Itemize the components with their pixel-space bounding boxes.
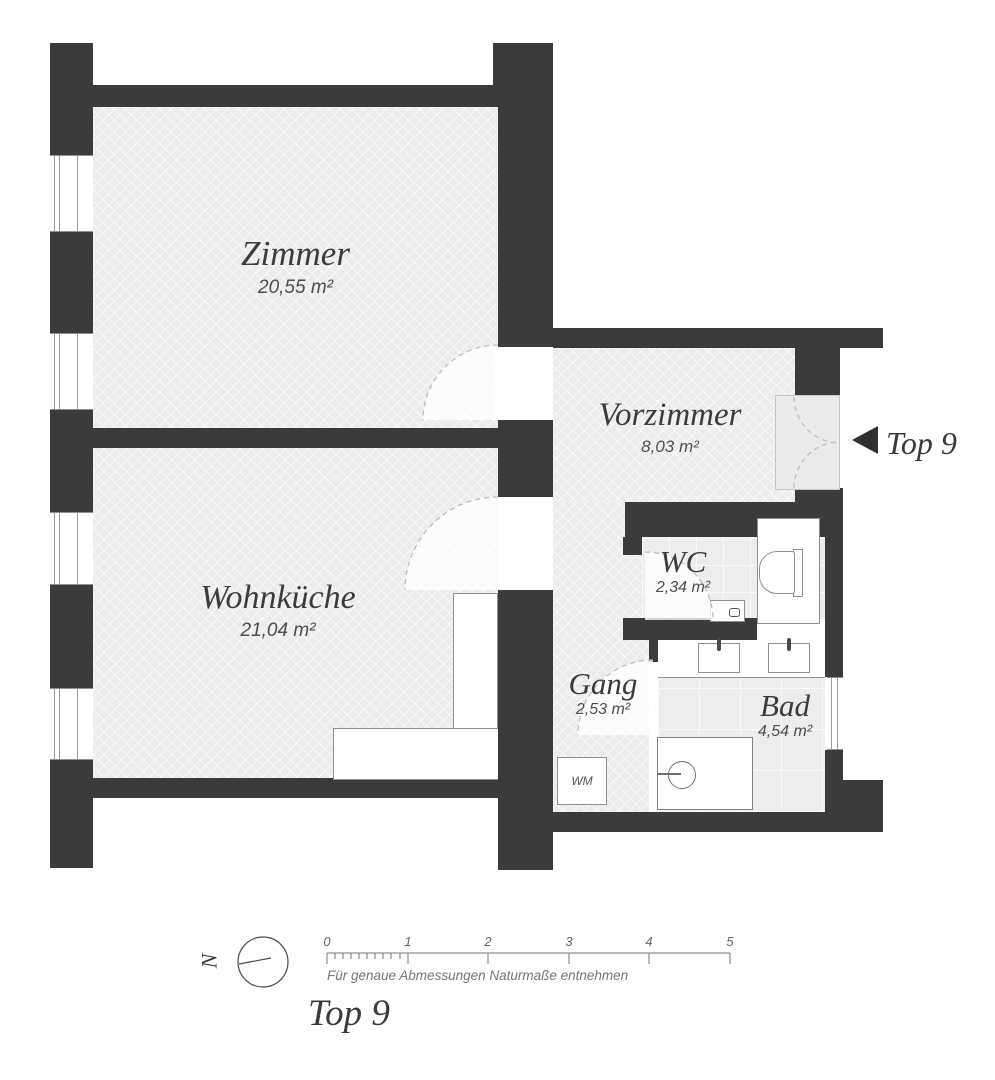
wall (623, 537, 642, 555)
wall (649, 640, 658, 662)
washing-machine: WM (557, 757, 607, 805)
wall (50, 85, 553, 107)
wall (843, 780, 883, 832)
wall (553, 812, 883, 832)
wall (50, 760, 93, 868)
wall (498, 107, 553, 347)
wall (50, 43, 93, 87)
bad-window (827, 677, 843, 750)
washing-machine-label: WM (558, 758, 606, 804)
faucet-icon (717, 638, 721, 651)
wall (795, 348, 840, 397)
toilet-bowl (759, 551, 795, 594)
wall (50, 585, 93, 688)
zimmer-floor (93, 107, 498, 428)
bathroom-sink (768, 643, 810, 673)
compass-circle (238, 937, 288, 987)
wohnkueche-door-opening (498, 497, 553, 590)
scale-tick-4: 4 (645, 934, 652, 949)
wall (93, 428, 498, 448)
scale-tick-2: 2 (483, 934, 492, 949)
zimmer-door-opening (494, 347, 553, 420)
window (50, 333, 93, 410)
wall (50, 232, 93, 333)
scale-tick-3: 3 (565, 934, 573, 949)
wall (93, 778, 498, 798)
compass-needle (239, 958, 271, 964)
entrance-label: Top 9 (886, 425, 957, 462)
window (50, 688, 93, 760)
faucet-icon (787, 638, 791, 651)
wall (825, 750, 843, 812)
wall (825, 505, 843, 677)
entrance-door-recess (775, 395, 840, 490)
kitchen-counter (333, 728, 498, 780)
wall (553, 328, 883, 348)
scale-tick-1: 1 (404, 934, 411, 949)
window (50, 512, 93, 585)
entrance-arrow-icon (852, 426, 878, 454)
wall (498, 590, 553, 870)
wc-sink (710, 600, 745, 622)
wall (50, 107, 93, 155)
scale-tick-0: 0 (323, 934, 331, 949)
wall (50, 410, 93, 512)
drain-icon (668, 761, 696, 789)
bathroom-sink (698, 643, 740, 673)
shower-arm (657, 773, 681, 775)
plan-title: Top 9 (308, 992, 390, 1035)
faucet-icon (729, 608, 740, 617)
scale-caption: Für genaue Abmessungen Naturmaße entnehm… (327, 968, 628, 983)
wall (493, 43, 553, 87)
scale-tick-5: 5 (726, 934, 734, 949)
window (50, 155, 93, 232)
wall (498, 420, 553, 497)
compass-north-label: N (196, 954, 222, 969)
floor-plan-page: WM (0, 0, 995, 1080)
